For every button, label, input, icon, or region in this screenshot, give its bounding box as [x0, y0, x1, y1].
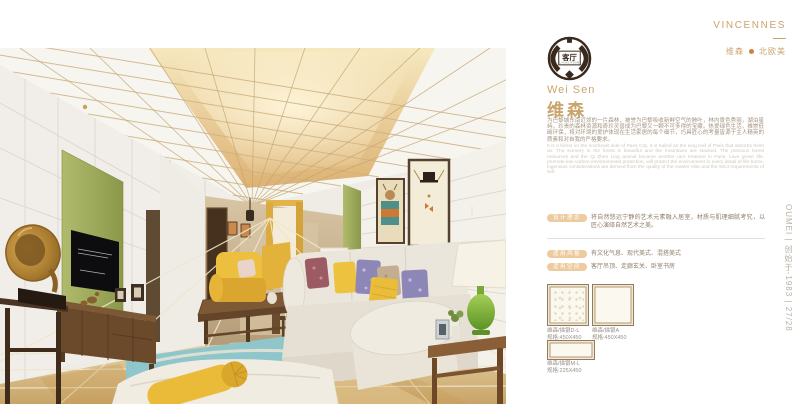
swatch-name: 维森/描银M-L	[547, 361, 582, 368]
info-row-design-concept: 设计理念 将自然悠远宁静的艺术元素融入居室，材质与肌理细腻考究，以匠心演绎自然艺…	[547, 214, 765, 230]
design-concept-text: 将自然悠远宁静的艺术元素融入居室，材质与肌理细腻考究，以匠心演绎自然艺术之美。	[591, 214, 765, 230]
space-pill: 适用空间	[547, 263, 587, 271]
green-lamp-base	[467, 294, 495, 330]
wall-art-deer-hat	[409, 160, 449, 246]
swatch-panel-1	[547, 284, 589, 326]
series-name: 维森	[726, 46, 744, 57]
right-lamp-shade	[452, 240, 506, 288]
style-pill: 适用风格	[547, 250, 587, 258]
medallion-icon: 客厅 LIVING ROOM	[546, 35, 593, 82]
style-name: 北欧美	[759, 46, 786, 57]
swatch-floral-pattern	[552, 289, 584, 321]
living-room-badge: 客厅 LIVING ROOM	[546, 35, 593, 82]
swatch-panel-2	[592, 284, 634, 326]
page-footer-vertical: OUMEI | 创始于-1983 | 27/28	[783, 204, 794, 332]
catalog-page: VINCENNES 维森 北欧美 客厅 LIVING ROOM Wei Sen …	[0, 0, 800, 404]
living-room-scene	[0, 48, 506, 404]
swatch-name: 维森/描银D-L	[547, 328, 582, 335]
swatch-spec: 规格:450X450	[592, 335, 627, 342]
style-text: 有文化气息、现代美式、混搭美式	[591, 250, 765, 258]
living-room-photo	[0, 48, 506, 404]
brand-divider	[773, 38, 786, 39]
brand-name: VINCENNES	[713, 20, 786, 31]
design-concept-pill: 设计理念	[547, 214, 587, 222]
badge-room-en: LIVING ROOM	[560, 62, 580, 64]
panel-divider	[547, 238, 765, 239]
wall-art-deer-sweater	[377, 179, 404, 243]
product-description-cn: 为巴黎城东南近郊的一片森林，被誉为巴黎吸收新鲜空气的肺叶，林内景色秀丽，湖泊星峙…	[547, 118, 764, 143]
product-title-en: Wei Sen	[547, 84, 595, 96]
swatch-panel-3	[547, 340, 595, 360]
space-text: 客厅吊顶、走廊玄关、卧室书房	[591, 263, 765, 271]
info-row-style: 适用风格 有文化气息、现代美式、混搭美式	[547, 250, 765, 258]
brand-block: VINCENNES 维森 北欧美	[713, 20, 786, 57]
series-style-line: 维森 北欧美	[713, 46, 786, 57]
swatch-caption-3: 维森/描银M-L 规格:225X450	[547, 361, 582, 374]
info-row-space: 适用空间 客厅吊顶、走廊玄关、卧室书房	[547, 263, 765, 271]
swatch-spec: 规格:225X450	[547, 368, 582, 375]
swatch-caption-2: 维森/描银A 规格:450X450	[592, 328, 627, 341]
product-description-en: It is a forest on the southeast side of …	[547, 144, 764, 176]
style-dot-icon	[749, 49, 754, 54]
badge-room-cn: 客厅	[561, 53, 577, 62]
